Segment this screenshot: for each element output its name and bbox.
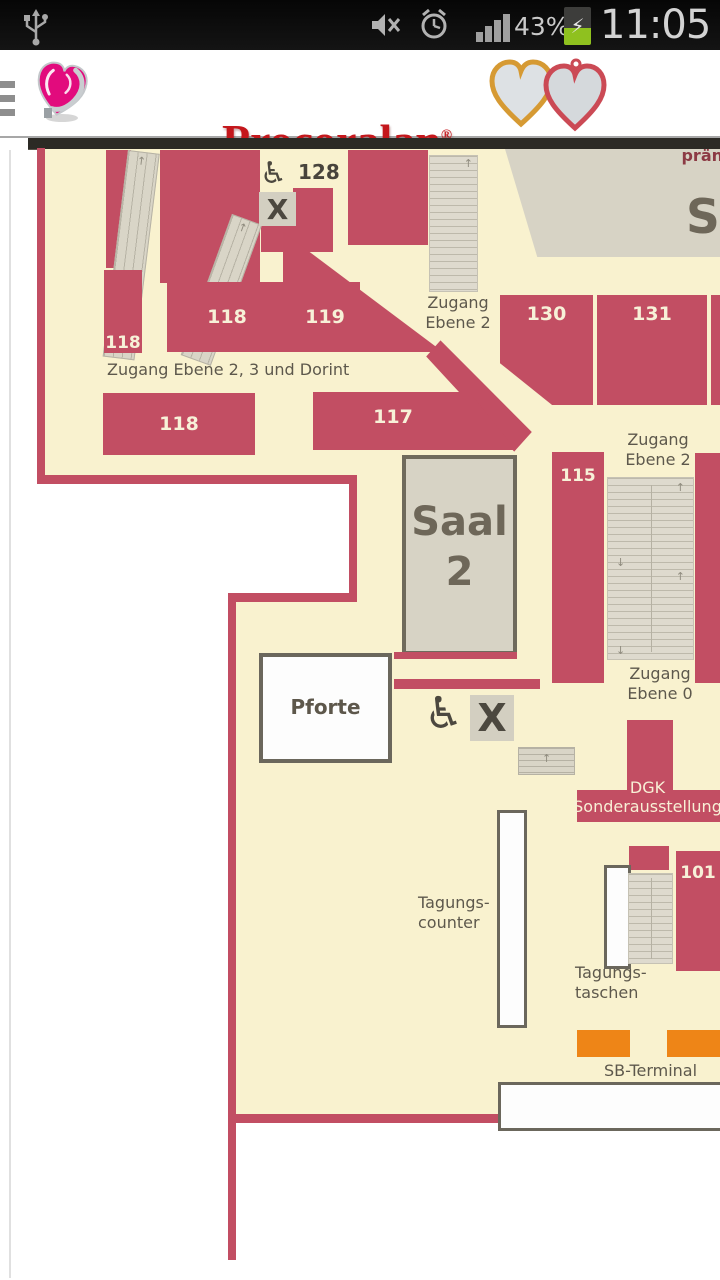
- sb-terminal-unit: [667, 1030, 720, 1057]
- room-115: 115: [552, 452, 604, 683]
- stairs-icon: [628, 873, 673, 964]
- map-boundary: [349, 475, 357, 601]
- room-label: 118: [105, 333, 141, 353]
- double-hearts-icon: [487, 58, 607, 134]
- room-edge-right: [711, 295, 720, 405]
- up-arrow-icon: ↑: [464, 157, 473, 170]
- zugang-dorint-label: Zugang Ebene 2, 3 und Dorint: [107, 360, 407, 380]
- heart-logo-icon: [28, 58, 94, 124]
- map-boundary: [37, 475, 357, 484]
- down-arrow-icon: ↓: [616, 556, 625, 569]
- tagungstaschen-label: Tagungs- taschen: [575, 963, 665, 1003]
- room-118-top: 118: [167, 282, 287, 352]
- room-119: 119: [290, 282, 360, 352]
- wall-segment: [293, 188, 333, 225]
- room-label: 118: [159, 413, 199, 435]
- room-label: 130: [527, 303, 567, 325]
- hall-saal1-label: S: [686, 190, 720, 245]
- room-label: 117: [313, 406, 473, 428]
- up-arrow-icon: ↑: [542, 752, 551, 765]
- tagungscounter-label: Tagungs- counter: [418, 893, 508, 933]
- room-131: 131: [597, 295, 707, 405]
- pforte-box: Pforte: [259, 653, 392, 763]
- signal-strength-icon: [476, 12, 512, 42]
- stairs-divider: [651, 485, 652, 652]
- wall-segment: [348, 150, 428, 245]
- tagungstaschen-desk: [604, 865, 631, 969]
- dgk-sonderausstellung-label: DGK Sonderausstellung: [560, 778, 720, 816]
- map-boundary: [37, 148, 45, 483]
- x-marker-glyph: X: [477, 696, 506, 740]
- stairs-icon: ↑ ↓ ↓ ↑: [607, 477, 694, 660]
- mute-icon: [370, 9, 402, 41]
- room-label: 118: [207, 306, 247, 328]
- app-header: Procoralan® Ivabradin: [0, 50, 720, 138]
- status-bar: 43% ⚡ 11:05: [0, 0, 720, 50]
- floor-plan-map[interactable]: prän S ↑ ↑ ♿ X 128 ↑ Zugang Ebene 2 118: [0, 138, 720, 1280]
- zugang-ebene2-top-label: Zugang Ebene 2: [408, 293, 508, 333]
- screen: 43% ⚡ 11:05 Procoralan® Ivabradin: [0, 0, 720, 1280]
- sb-terminal-label: SB-Terminal: [604, 1061, 714, 1081]
- alarm-icon: [416, 7, 452, 43]
- x-marker-icon: X: [470, 695, 514, 741]
- wall-segment: [394, 652, 517, 659]
- map-boundary: [228, 593, 357, 602]
- page-edge-line: [9, 150, 11, 1278]
- stairs-divider: [651, 878, 652, 960]
- clock-time: 11:05: [600, 2, 710, 48]
- wheelchair-icon: ♿: [260, 156, 287, 191]
- room-label: 115: [560, 466, 596, 486]
- zugang-ebene2-mid-label: Zugang Ebene 2: [610, 430, 706, 470]
- down-arrow-icon: ↓: [616, 644, 625, 657]
- up-arrow-icon: ↑: [676, 570, 685, 583]
- sb-terminal-unit: [577, 1030, 630, 1057]
- room-label: 101: [680, 863, 716, 883]
- counter-box-bottom: [498, 1082, 720, 1131]
- map-boundary: [228, 593, 236, 1260]
- wheelchair-icon: ♿: [424, 688, 463, 739]
- zugang-ebene0-label: Zugang Ebene 0: [612, 664, 708, 704]
- up-arrow-icon: ↑: [676, 481, 685, 494]
- map-boundary: [228, 1114, 500, 1123]
- room-label: 131: [632, 303, 672, 325]
- charging-bolt-icon: ⚡: [570, 14, 584, 38]
- usb-icon: [18, 5, 54, 47]
- ramp-icon: ↑: [518, 747, 575, 775]
- wall-segment: [695, 453, 720, 683]
- room-118-left: 118: [104, 270, 142, 353]
- stairs-icon: ↑: [429, 155, 478, 292]
- x-marker-icon: X: [259, 192, 296, 226]
- x-marker-glyph: X: [267, 193, 289, 226]
- battery-percent: 43%: [514, 12, 570, 41]
- praemiert-label: prän: [648, 146, 720, 165]
- room-label: 119: [305, 306, 345, 328]
- room-128-label: 128: [298, 160, 340, 184]
- hall-saal2: Saal 2: [402, 455, 517, 655]
- battery-charging-icon: ⚡: [564, 7, 591, 45]
- up-arrow-icon: ↑: [136, 154, 147, 168]
- wall-segment: [629, 846, 669, 870]
- up-arrow-icon: ↑: [236, 220, 249, 235]
- room-101: 101: [676, 851, 720, 971]
- room-118-mid: 118: [103, 393, 255, 455]
- wall-segment: [394, 679, 540, 689]
